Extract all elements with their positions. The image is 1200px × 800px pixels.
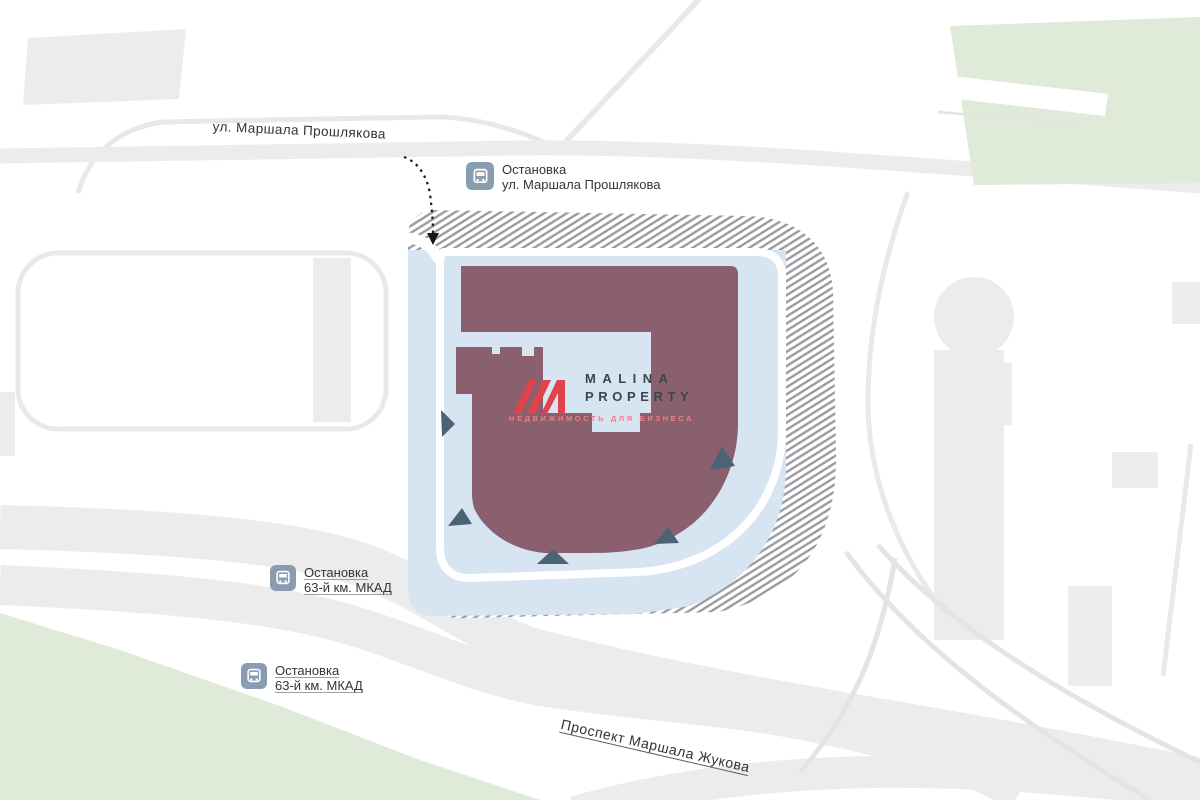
building-right-tower [934, 350, 1004, 640]
bus-stop-line2: 63-й км. МКАД [304, 580, 392, 595]
bus-stop-label: Остановка ул. Маршала Прошлякова [502, 162, 660, 193]
bus-icon [241, 663, 267, 689]
bus-stop-line2: ул. Маршала Прошлякова [502, 177, 660, 192]
bus-glyph-icon [245, 667, 263, 685]
bus-stop-label: Остановка 63-й км. МКАД [275, 663, 363, 694]
block-far-right-3 [1068, 586, 1112, 686]
road-diagonal-top [560, 0, 700, 148]
green-bottomleft [0, 613, 540, 800]
block-far-right-2 [1112, 452, 1158, 488]
malina-logo-mark-icon [513, 372, 579, 414]
bus-icon [270, 565, 296, 591]
bus-stop-mkad-upper[interactable]: Остановка 63-й км. МКАД [270, 565, 392, 596]
malina-property-logo: MALINA PROPERTY НЕДВИЖИМОСТЬ ДЛЯ БИЗНЕСА [505, 366, 715, 432]
block-topleft [23, 29, 186, 105]
block-far-right-1 [1172, 282, 1200, 324]
bus-stop-label: Остановка 63-й км. МКАД [304, 565, 392, 596]
logo-line1: MALINA [585, 371, 675, 386]
bus-glyph-icon [471, 167, 490, 186]
map-canvas: ул. Маршала Прошлякова Проспект Маршала … [0, 0, 1200, 800]
building-right-step [1000, 363, 1012, 425]
bus-stop-proshlyakova[interactable]: Остановка ул. Маршала Прошлякова [466, 162, 660, 193]
bus-stop-line2: 63-й км. МКАД [275, 678, 363, 693]
block-left-tall [313, 258, 351, 422]
bus-stop-line1: Остановка [275, 663, 363, 678]
highway-band-3 [575, 772, 1200, 800]
bus-stop-mkad-lower[interactable]: Остановка 63-й км. МКАД [241, 663, 363, 694]
logo-line2: PROPERTY [585, 389, 693, 404]
bus-stop-line1: Остановка [304, 565, 392, 580]
building-right-circle [934, 277, 1014, 357]
bus-icon [466, 162, 494, 190]
road-diagonal-right [1163, 444, 1191, 676]
bus-glyph-icon [274, 569, 292, 587]
block-left-edge [0, 392, 15, 456]
bus-stop-line1: Остановка [502, 162, 660, 177]
logo-tagline: НЕДВИЖИМОСТЬ ДЛЯ БИЗНЕСА [509, 414, 694, 423]
